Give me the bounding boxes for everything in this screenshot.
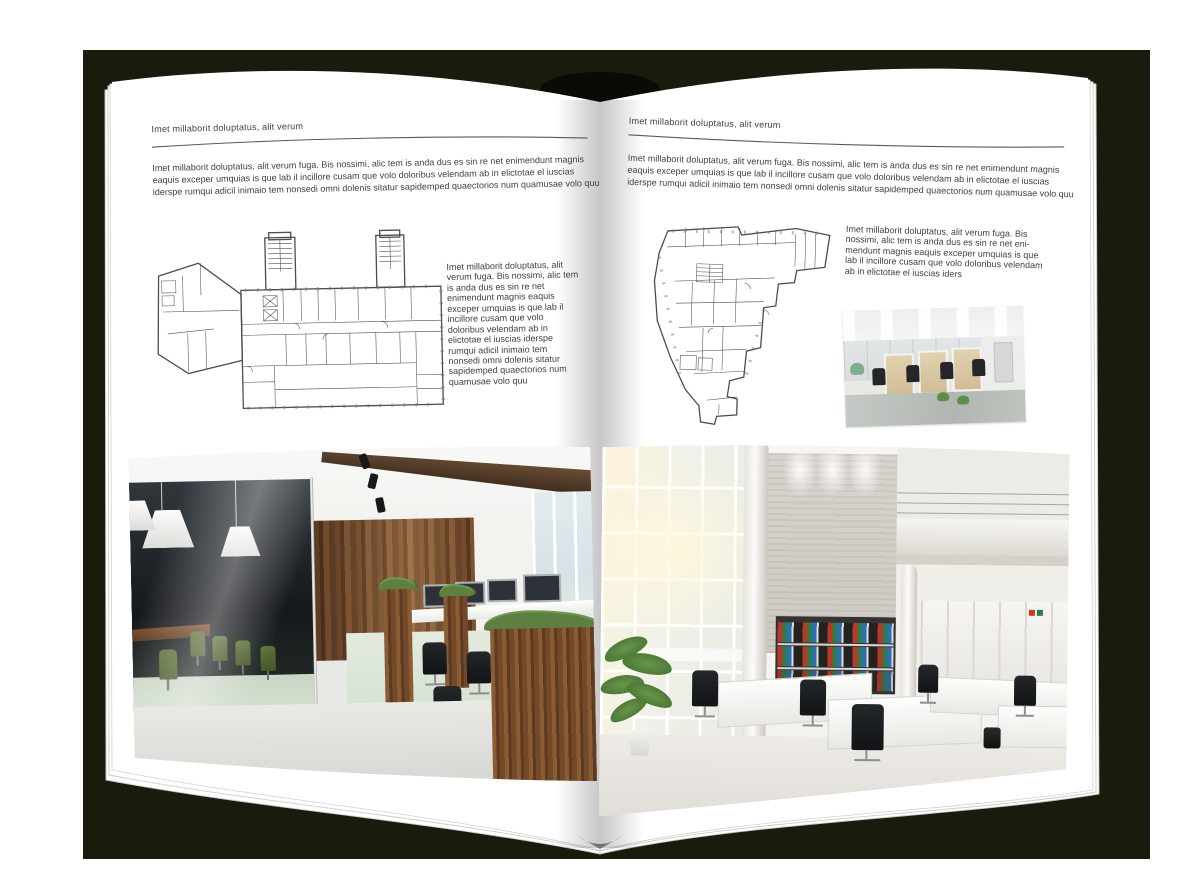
monitor [523,574,562,603]
office-photo-left [128,443,597,793]
office-chair [851,704,883,750]
office-chair [906,365,920,382]
white-desk [997,705,1068,748]
right-header-rule [628,132,1064,154]
storage-cabinets [920,601,1068,685]
first-aid-sign [1029,610,1035,616]
binder-row [777,646,893,667]
binder-row [778,622,894,643]
office-chair [422,642,447,674]
left-page-header: Imet millaborit doluptatus, alit verum [151,121,303,134]
office-chair [940,362,954,379]
wood-planter [443,596,469,688]
office-chair [467,651,492,683]
round-column [900,564,918,714]
magazine-spread-mockup: Imet millaborit doluptatus, alit verum I… [0,0,1200,891]
exit-sign [1037,610,1043,616]
right-page-content: Imet millaborit doluptatus, alit verum I… [589,45,1103,838]
waste-bin [983,727,1000,748]
office-chair [872,368,886,385]
desk-plant [957,395,969,404]
door [993,342,1013,383]
carpet-floor [845,390,1026,428]
left-header-rule [152,131,588,150]
left-page-content: Imet millaborit doluptatus, alit verum I… [104,53,608,823]
office-chair [972,359,986,376]
lounge-plant [850,363,864,375]
right-page-intro: Imet millaborit doluptatus, alit verum f… [627,152,1080,201]
monitor [487,579,517,603]
floor-plan-right [640,216,846,432]
glass-reflection [129,479,316,721]
office-chair [918,665,938,693]
office-chair [692,670,718,706]
office-photo-small [842,306,1026,428]
desk-plant [937,392,949,401]
balcony-front [897,518,1069,556]
right-sidebar-text: Imet millaborit doluptatus, alit verum f… [845,224,1046,282]
office-chair [800,679,826,715]
left-sidebar-text: Imet millaborit doluptatus, alit verum f… [446,259,581,387]
wood-planter [383,589,413,708]
right-page-header: Imet millaborit doluptatus, alit verum [629,116,781,130]
floor-plan-left [152,228,454,418]
wood-planter-large [490,627,597,785]
left-page-intro: Imet millaborit doluptatus, alit verum f… [152,153,605,199]
office-chair [1014,676,1036,706]
office-photo-right [599,439,1070,824]
